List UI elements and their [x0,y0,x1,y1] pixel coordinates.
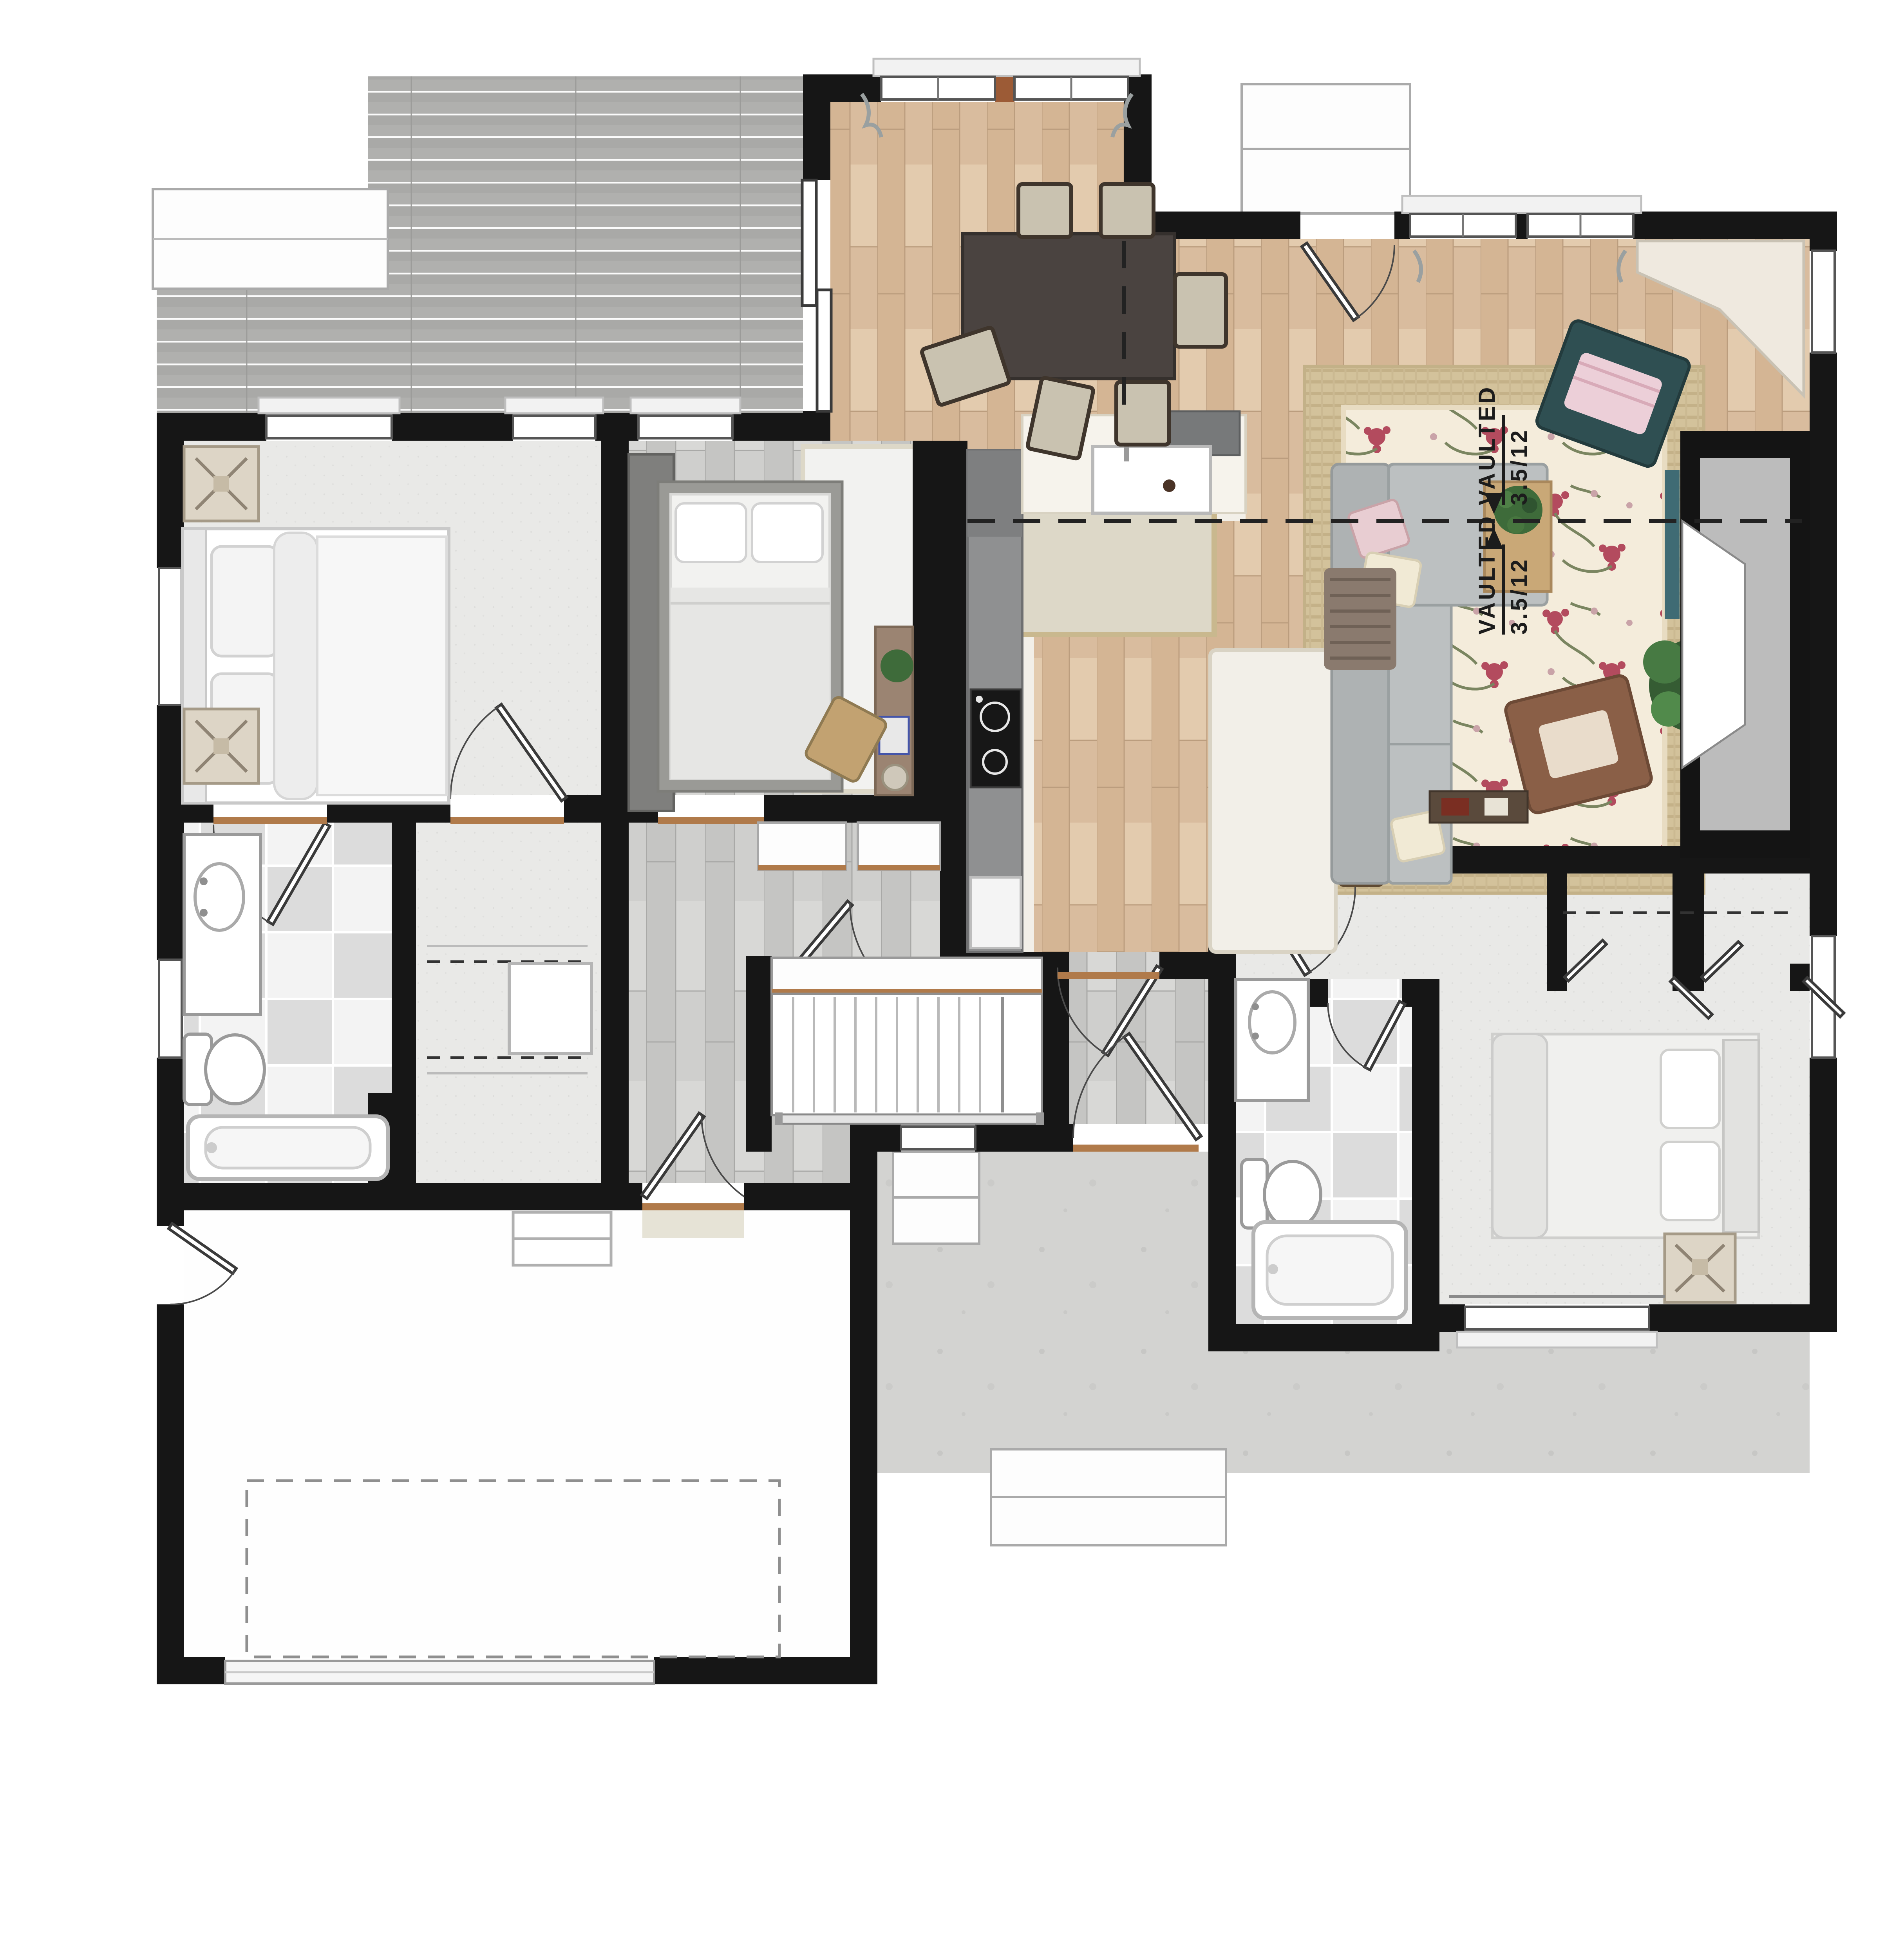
hall-bath-tub [1253,1222,1406,1318]
vault-lower-label: VAULTED [1474,514,1500,635]
garage-landing [642,1210,744,1238]
fireplace [1680,431,1810,858]
stair-closet [772,958,1042,993]
master-window-2 [513,416,595,438]
oven [971,877,1021,948]
master-window-1 [266,416,392,438]
hall-closet-1 [758,823,846,870]
low-tray-table [1430,791,1528,823]
closet-dresser [509,964,591,1054]
floor-plan-page: VAULTED 3.5/12 VAULTED 3.5/12 [0,0,1904,1946]
vault-upper-pitch: 3.5/12 [1506,428,1532,505]
master-window-west [159,568,182,705]
garage-floor [184,1210,850,1657]
hall-bath-toilet [1242,1159,1321,1228]
deck-upper [368,76,803,208]
kitchen-sink [1093,442,1210,513]
hall-closet-2 [858,823,940,870]
throw-blanket [1324,568,1396,670]
kitchen-rug [1003,509,1214,635]
waste-bin [882,765,908,790]
entry-window [901,1127,975,1149]
bedroom3-window-south [1465,1307,1649,1329]
floor-plan-canvas: VAULTED 3.5/12 VAULTED 3.5/12 [0,0,1904,1946]
garage-cabinet [513,1212,611,1265]
tv-panel [1665,470,1680,619]
master-tub [188,1116,388,1179]
stairwell [772,958,1044,1125]
refrigerator [967,450,1022,537]
side-table-1 [184,447,259,521]
master-bath-window [159,960,182,1058]
stair-railing [778,1114,1040,1124]
hall-bath-sink [1249,992,1295,1053]
side-table-2 [184,709,259,783]
cooktop [971,689,1021,787]
bed3-side-table [1665,1234,1735,1302]
kitchen-island [1210,650,1336,952]
desk [875,627,913,795]
bed3-bed [1492,1034,1759,1238]
desk-plant [881,649,913,682]
master-sink [195,864,244,930]
bedroom2-window [638,416,732,438]
living-window-east [1812,251,1835,353]
master-toilet [184,1034,264,1105]
vault-upper-label: VAULTED [1474,385,1500,505]
sliding-door [802,180,831,411]
vault-lower-pitch: 3.5/12 [1506,557,1532,635]
